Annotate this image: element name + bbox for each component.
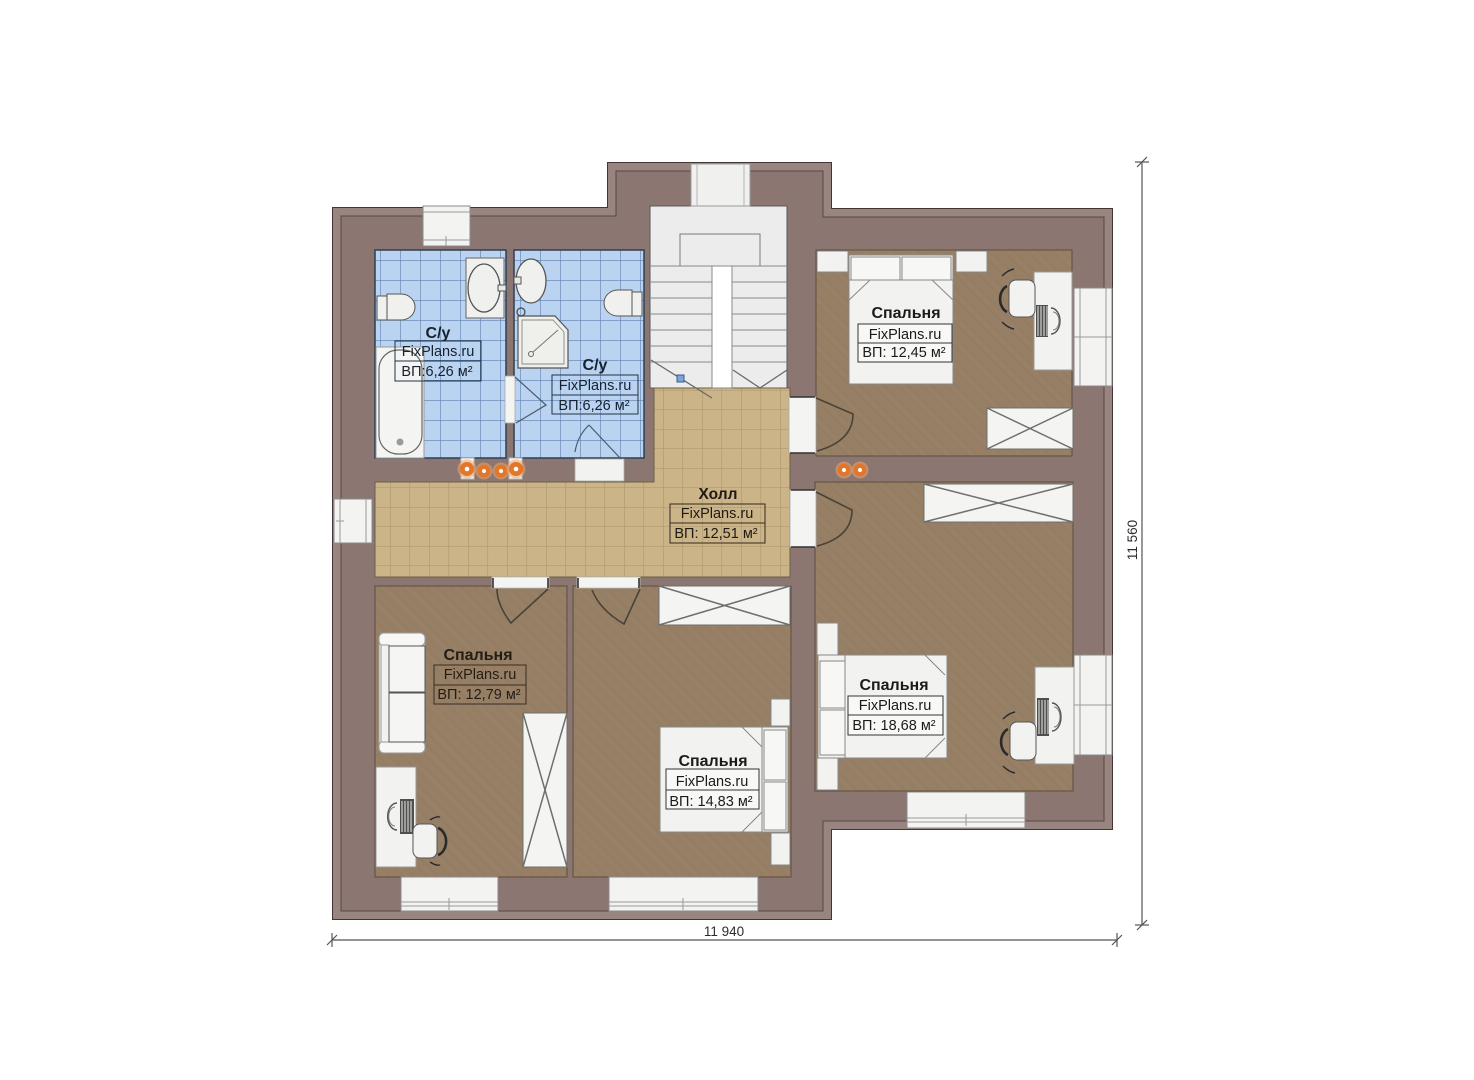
svg-text:ВП: 12,45 м²: ВП: 12,45 м² bbox=[862, 345, 945, 361]
svg-text:Спальня: Спальня bbox=[678, 753, 747, 770]
svg-text:Холл: Холл bbox=[699, 486, 738, 503]
svg-text:ВП:6,26 м²: ВП:6,26 м² bbox=[558, 398, 629, 414]
svg-text:Спальня: Спальня bbox=[859, 677, 928, 694]
svg-text:Спальня: Спальня bbox=[443, 647, 512, 664]
svg-text:FixPlans.ru: FixPlans.ru bbox=[681, 506, 754, 522]
svg-text:ВП: 12,79 м²: ВП: 12,79 м² bbox=[437, 687, 520, 703]
svg-text:С/у: С/у bbox=[583, 357, 608, 374]
svg-text:ВП: 14,83 м²: ВП: 14,83 м² bbox=[669, 794, 752, 810]
svg-text:ВП:6,26 м²: ВП:6,26 м² bbox=[401, 364, 472, 380]
svg-text:Спальня: Спальня bbox=[871, 305, 940, 322]
svg-text:FixPlans.ru: FixPlans.ru bbox=[559, 378, 632, 394]
svg-text:11 560: 11 560 bbox=[1125, 520, 1140, 560]
svg-text:FixPlans.ru: FixPlans.ru bbox=[676, 774, 749, 790]
svg-text:FixPlans.ru: FixPlans.ru bbox=[444, 667, 517, 683]
svg-text:С/у: С/у bbox=[426, 325, 451, 342]
svg-text:ВП: 18,68 м²: ВП: 18,68 м² bbox=[852, 718, 935, 734]
svg-text:FixPlans.ru: FixPlans.ru bbox=[869, 327, 942, 343]
svg-text:ВП: 12,51 м²: ВП: 12,51 м² bbox=[674, 526, 757, 542]
svg-text:FixPlans.ru: FixPlans.ru bbox=[859, 698, 932, 714]
svg-text:FixPlans.ru: FixPlans.ru bbox=[402, 344, 475, 360]
svg-text:11 940: 11 940 bbox=[704, 924, 744, 939]
